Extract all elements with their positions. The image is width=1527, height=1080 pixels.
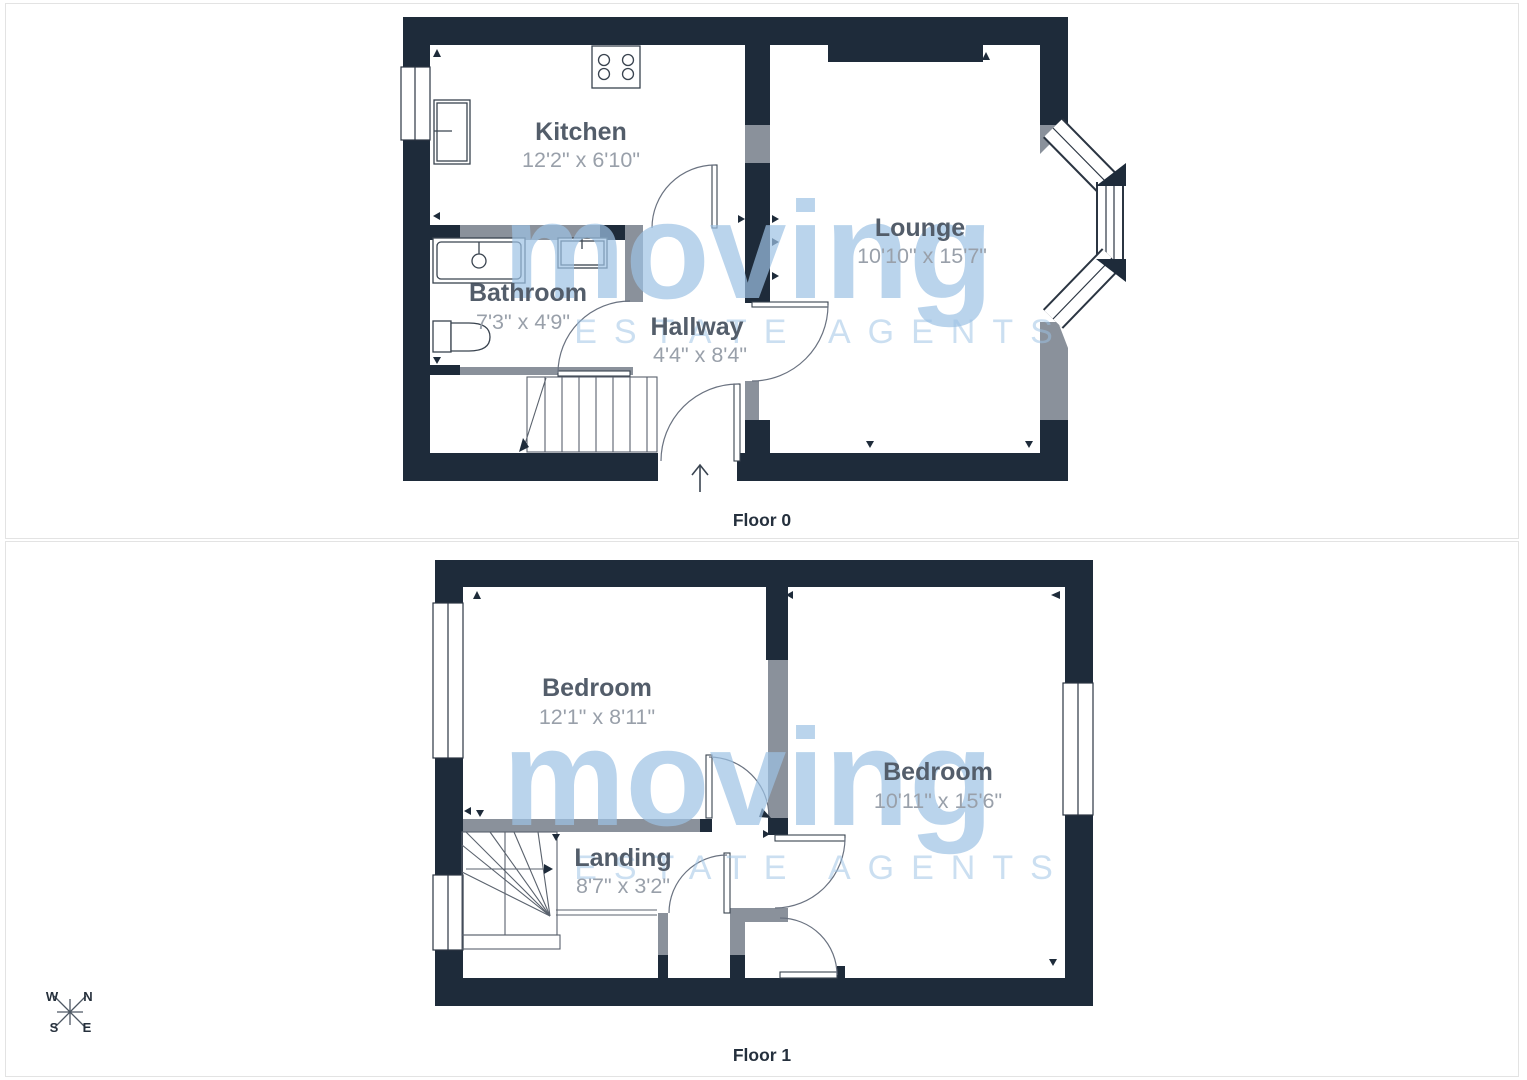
room-dims-bathroom: 7'3" x 4'9" (476, 310, 570, 334)
room-label-lounge: Lounge (875, 214, 965, 242)
entrance-arrow-icon (692, 465, 708, 492)
floor1-plan: moving ESTATE AGENTS Bedroom 12'1" x 8'1… (0, 540, 1527, 1080)
floor0-label: Floor 0 (733, 510, 792, 530)
room-dims-bedroom1: 12'1" x 8'11" (539, 705, 655, 729)
room-label-kitchen: Kitchen (535, 118, 627, 146)
hob-fixture (592, 46, 640, 88)
lobby-door-bottom (780, 918, 837, 978)
entrance-door (661, 384, 740, 461)
bay-window (1053, 128, 1126, 319)
compass-north: N (83, 989, 92, 1004)
compass-icon: W N S E (46, 989, 93, 1035)
room-dims-landing: 8'7" x 3'2" (576, 874, 670, 898)
floorplan-page: moving ESTATE AGENTS Kitchen 12'2" x 6'1… (0, 0, 1527, 1080)
room-label-landing: Landing (574, 844, 671, 872)
watermark-tagline: ESTATE AGENTS (574, 313, 1070, 351)
left-window (401, 67, 430, 140)
room-dims-hallway: 4'4" x 8'4" (653, 343, 747, 367)
landing-rail (556, 910, 657, 915)
floor1-label: Floor 1 (733, 1045, 792, 1065)
room-label-bedroom1: Bedroom (542, 674, 652, 702)
kitchen-sink-fixture (434, 100, 470, 164)
room-label-hallway: Hallway (650, 313, 743, 341)
room-label-bathroom: Bathroom (469, 279, 587, 307)
left-window-lower (433, 875, 463, 950)
right-window (1063, 683, 1093, 815)
compass-west: W (46, 989, 59, 1004)
room-dims-bedroom2: 10'11" x 15'6" (874, 789, 1002, 813)
room-dims-lounge: 10'10" x 15'7" (857, 244, 987, 268)
compass-east: E (83, 1020, 92, 1035)
room-dims-kitchen: 12'2" x 6'10" (522, 148, 640, 172)
room-label-bedroom2: Bedroom (883, 758, 993, 786)
left-window-upper (433, 603, 463, 758)
floor0-plan: moving ESTATE AGENTS Kitchen 12'2" x 6'1… (0, 0, 1527, 540)
compass-south: S (50, 1020, 59, 1035)
stairs (519, 377, 657, 452)
